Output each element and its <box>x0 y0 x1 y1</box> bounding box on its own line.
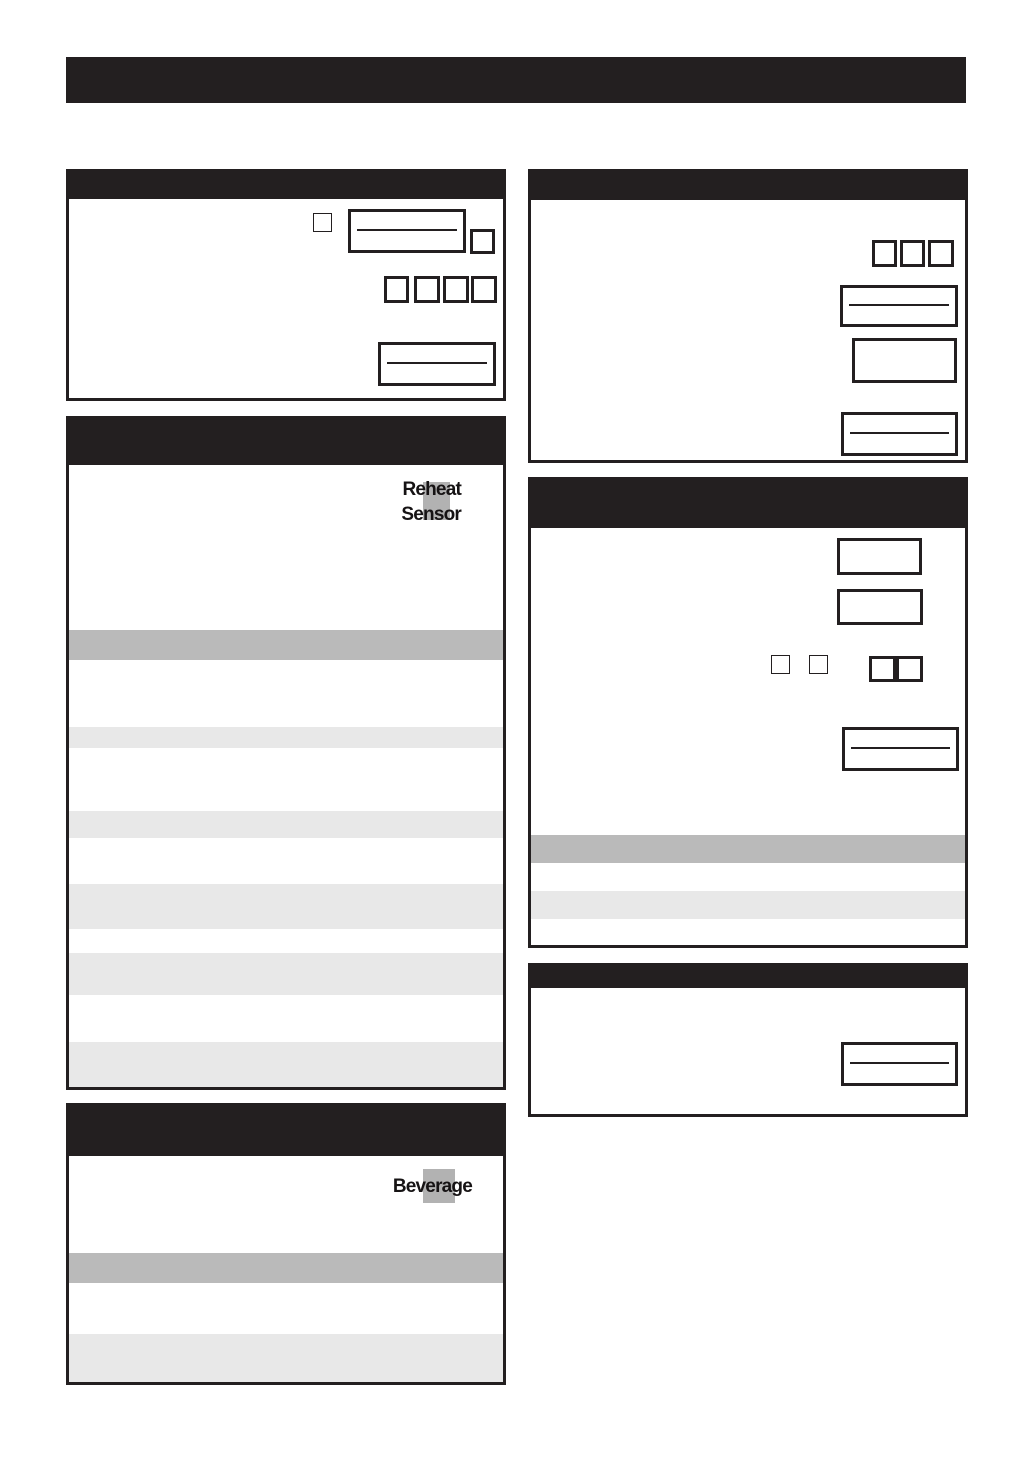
panel-lower-right-header <box>531 966 965 988</box>
display-window-box <box>348 209 466 253</box>
panel-upper-left-header <box>69 172 503 199</box>
blank-window-box <box>837 538 922 575</box>
display-window-box <box>842 727 959 771</box>
table-header-stripe <box>531 835 965 863</box>
small-square-box <box>771 655 790 674</box>
panel-reheat-sensor-header <box>69 419 503 465</box>
panel-middle-right-header <box>531 480 965 528</box>
page-title-banner <box>66 57 966 103</box>
keypad-button-box <box>384 276 409 303</box>
fill-in-rule <box>850 432 949 434</box>
keypad-button-box <box>470 229 495 254</box>
fill-in-rule <box>387 362 487 364</box>
table-row-stripe <box>69 811 503 838</box>
panel-reheat-sensor: Reheat Sensor <box>66 416 506 1090</box>
keypad-button-box <box>869 656 896 682</box>
table-row-stripe <box>69 727 503 748</box>
table-header-stripe <box>69 630 503 660</box>
fill-in-rule <box>357 229 457 231</box>
reheat-key-line: Reheat <box>401 477 461 502</box>
blank-window-box <box>852 338 957 383</box>
small-square-box <box>313 213 332 232</box>
panel-beverage-header <box>69 1106 503 1156</box>
panel-beverage: Beverage <box>66 1103 506 1385</box>
table-row-stripe <box>69 884 503 929</box>
small-square-box <box>809 655 828 674</box>
beverage-key-label: Beverage <box>393 1174 472 1199</box>
keypad-button-box <box>928 240 954 267</box>
display-window-box <box>840 285 958 327</box>
table-header-stripe <box>69 1253 503 1283</box>
keypad-button-box <box>896 656 923 682</box>
scanned-manual-page: Reheat Sensor Beverage <box>0 0 1031 1457</box>
fill-in-rule <box>850 1062 949 1064</box>
panel-middle-right <box>528 477 968 948</box>
sensor-key-line: Sensor <box>401 502 461 527</box>
keypad-button-box <box>443 276 469 303</box>
keypad-button-box <box>872 240 897 267</box>
table-row-stripe <box>531 891 965 919</box>
keypad-button-box <box>414 276 440 303</box>
display-window-box <box>841 412 958 456</box>
fill-in-rule <box>849 304 949 306</box>
panel-upper-right <box>528 169 968 463</box>
keypad-button-box <box>471 276 497 303</box>
panel-lower-right <box>528 963 968 1117</box>
table-row-stripe <box>69 1042 503 1087</box>
panel-upper-right-header <box>531 172 965 200</box>
reheat-sensor-key-label: Reheat Sensor <box>401 477 461 527</box>
display-window-box <box>841 1042 958 1086</box>
panel-upper-left <box>66 169 506 401</box>
blank-window-box <box>837 589 923 625</box>
table-row-stripe <box>69 953 503 995</box>
display-window-box <box>378 342 496 386</box>
table-row-stripe <box>69 1334 503 1382</box>
keypad-button-box <box>900 240 925 267</box>
fill-in-rule <box>851 747 950 749</box>
